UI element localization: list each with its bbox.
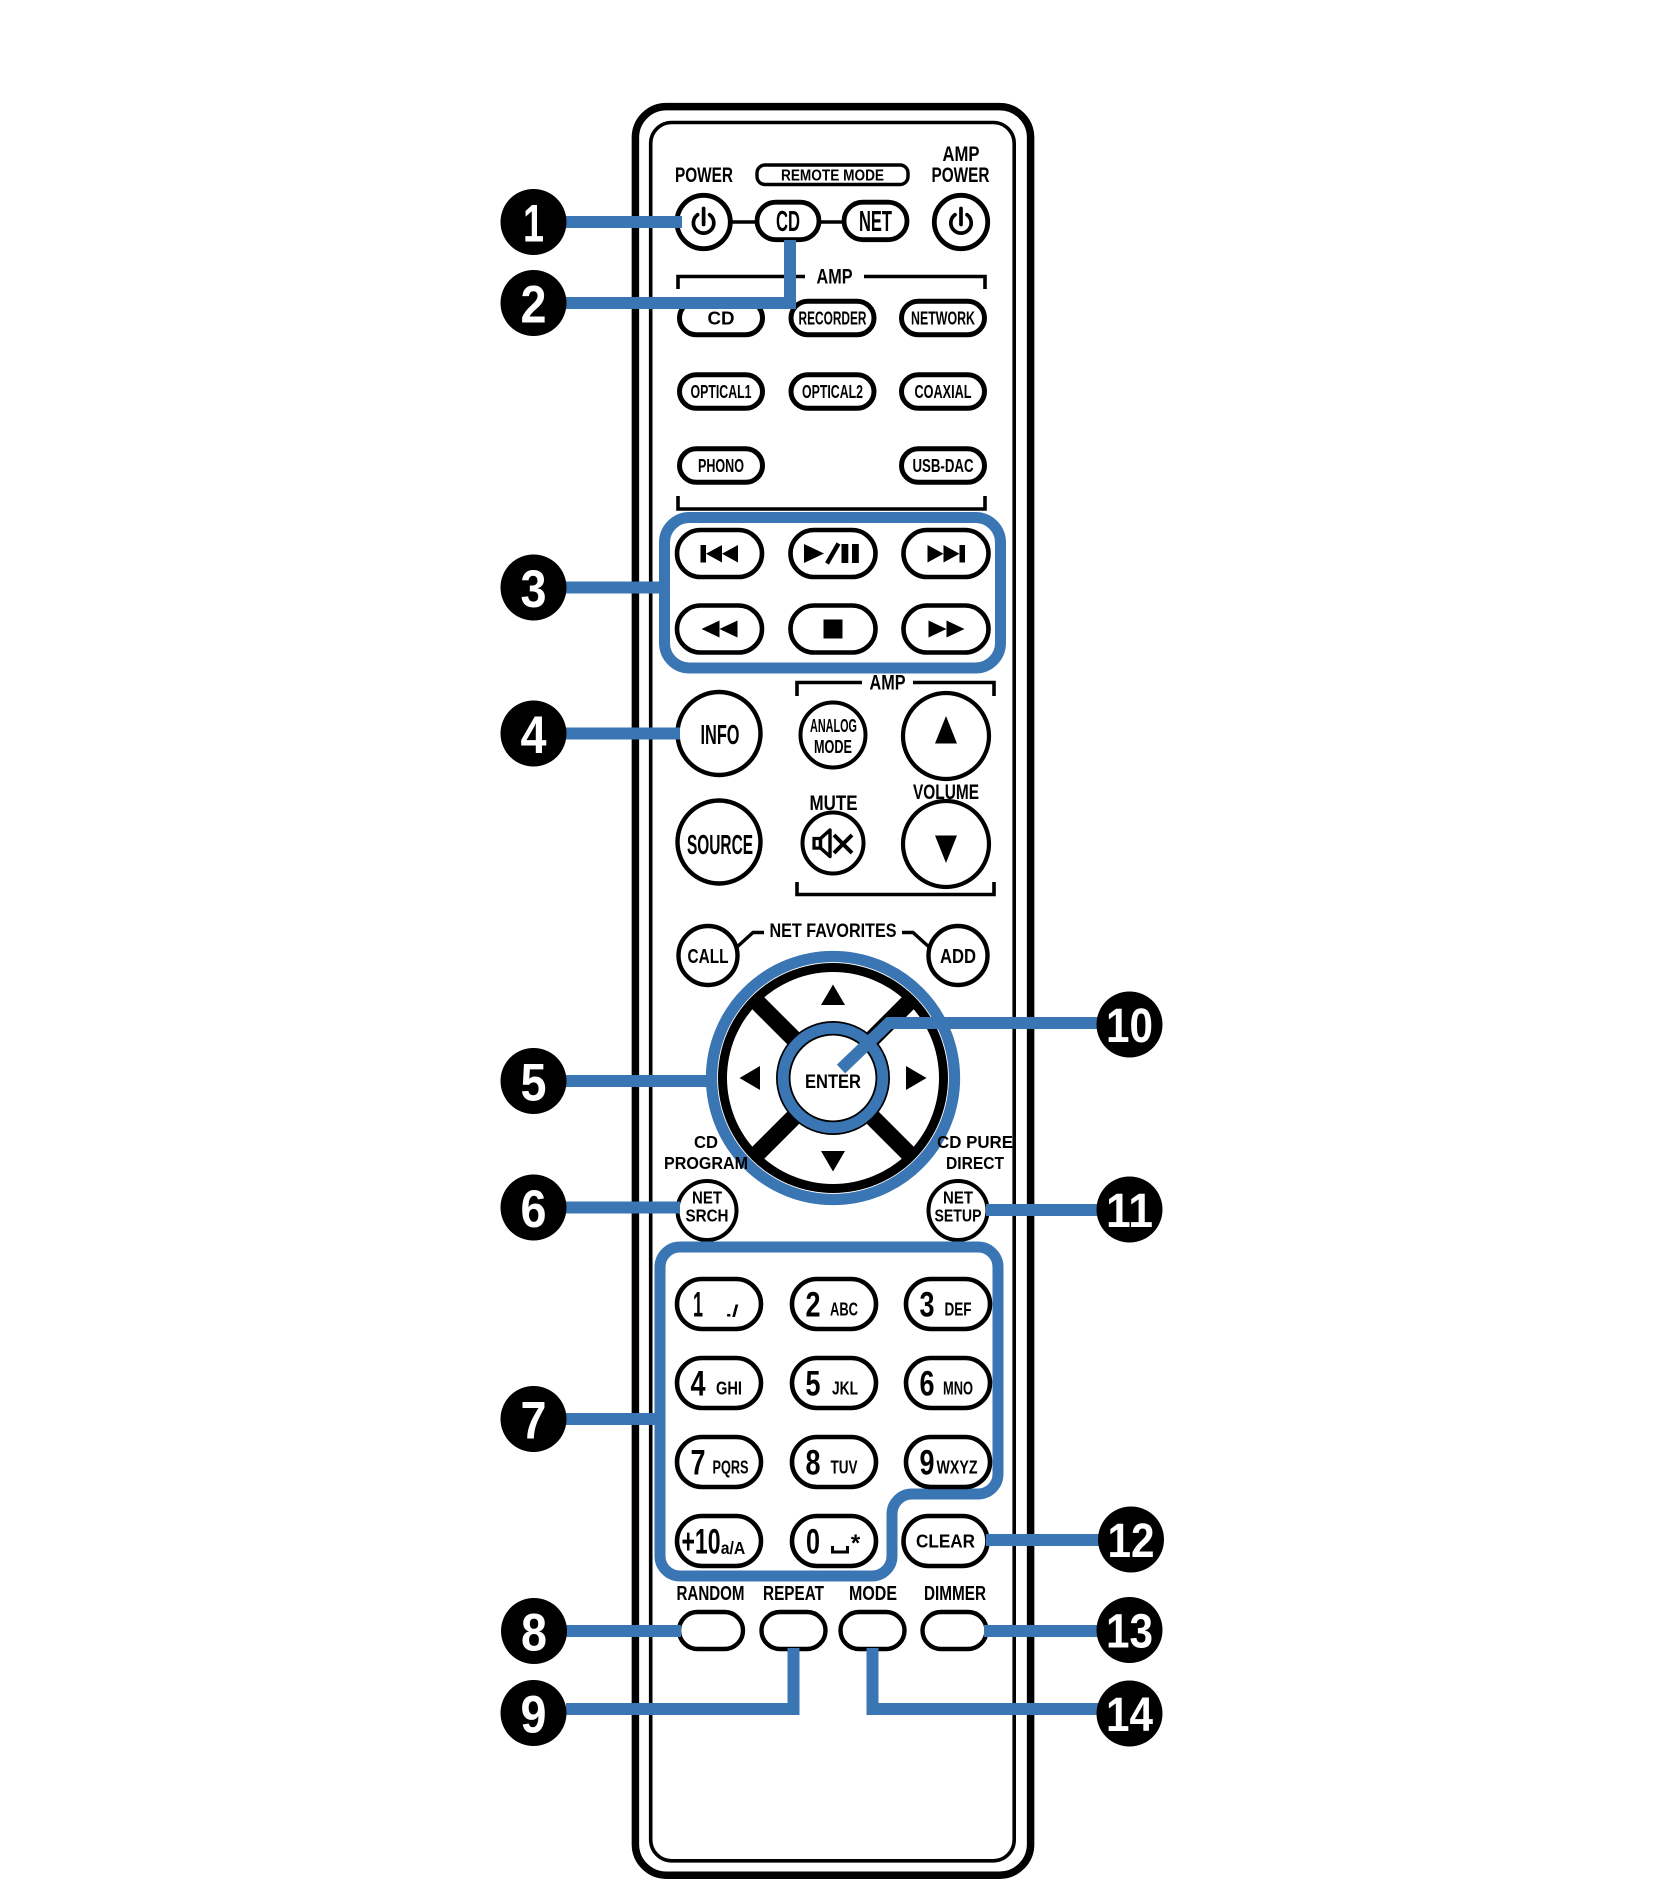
- svg-text:13: 13: [1106, 1606, 1153, 1659]
- svg-text:AMP: AMP: [943, 143, 980, 166]
- svg-text:NET FAVORITES: NET FAVORITES: [770, 920, 897, 942]
- svg-text:a/A: a/A: [721, 1538, 746, 1558]
- svg-text:7: 7: [521, 1392, 547, 1451]
- svg-text:ENTER: ENTER: [805, 1072, 861, 1093]
- svg-text:11: 11: [1106, 1185, 1153, 1238]
- svg-text:CD: CD: [708, 309, 735, 329]
- svg-text:+10: +10: [682, 1523, 721, 1562]
- svg-text:6: 6: [521, 1180, 547, 1239]
- svg-text:1: 1: [693, 1286, 703, 1325]
- svg-text:2: 2: [806, 1286, 821, 1325]
- svg-text:SRCH: SRCH: [686, 1206, 729, 1226]
- svg-text:9: 9: [920, 1444, 935, 1483]
- svg-text:8: 8: [521, 1604, 547, 1663]
- svg-text:7: 7: [691, 1444, 706, 1483]
- svg-text:WXYZ: WXYZ: [937, 1457, 978, 1478]
- svg-text:NET: NET: [859, 206, 892, 238]
- svg-text:SOURCE: SOURCE: [687, 829, 753, 860]
- svg-text:3: 3: [920, 1286, 935, 1325]
- svg-text:DEF: DEF: [945, 1299, 972, 1320]
- svg-text:ABC: ABC: [830, 1299, 858, 1320]
- svg-text:ADD: ADD: [940, 946, 976, 968]
- svg-text:CALL: CALL: [688, 946, 729, 968]
- svg-text:3: 3: [521, 560, 547, 619]
- svg-text:SETUP: SETUP: [935, 1206, 982, 1226]
- svg-text:4: 4: [521, 706, 547, 765]
- svg-text:9: 9: [521, 1686, 547, 1745]
- svg-text:CD: CD: [694, 1132, 718, 1152]
- svg-text:CD: CD: [776, 206, 800, 238]
- svg-text:REPEAT: REPEAT: [763, 1583, 824, 1605]
- svg-text:PQRS: PQRS: [713, 1457, 749, 1478]
- svg-text:MODE: MODE: [814, 737, 852, 757]
- svg-text:MNO: MNO: [943, 1378, 973, 1399]
- svg-text:8: 8: [806, 1444, 821, 1483]
- svg-text:CD PURE: CD PURE: [937, 1132, 1013, 1152]
- svg-text:DIMMER: DIMMER: [924, 1583, 986, 1605]
- svg-text:POWER: POWER: [932, 164, 990, 187]
- svg-text:OPTICAL2: OPTICAL2: [802, 382, 863, 402]
- svg-text:5: 5: [521, 1054, 547, 1113]
- svg-text:2: 2: [521, 276, 547, 335]
- svg-text:COAXIAL: COAXIAL: [915, 382, 972, 402]
- svg-text:./: ./: [726, 1302, 739, 1321]
- svg-text:DIRECT: DIRECT: [946, 1153, 1004, 1173]
- svg-text:AMP: AMP: [870, 672, 906, 695]
- svg-text:TUV: TUV: [831, 1457, 858, 1478]
- svg-text:NETWORK: NETWORK: [911, 309, 975, 329]
- svg-text:RECORDER: RECORDER: [799, 309, 867, 329]
- svg-text:12: 12: [1108, 1515, 1155, 1568]
- svg-text:OPTICAL1: OPTICAL1: [691, 382, 752, 402]
- svg-text:AMP: AMP: [817, 266, 853, 289]
- svg-text:0: 0: [806, 1523, 820, 1562]
- svg-text:ANALOG: ANALOG: [810, 716, 857, 736]
- svg-text:GHI: GHI: [716, 1378, 742, 1399]
- svg-text:REMOTE MODE: REMOTE MODE: [781, 168, 884, 185]
- svg-text:1: 1: [523, 195, 544, 254]
- svg-text:10: 10: [1106, 1000, 1153, 1053]
- svg-text:JKL: JKL: [832, 1378, 858, 1399]
- svg-text:14: 14: [1106, 1689, 1153, 1742]
- svg-text:4: 4: [691, 1365, 706, 1404]
- svg-text:NET: NET: [943, 1188, 973, 1208]
- svg-text:INFO: INFO: [701, 719, 740, 750]
- svg-text:PHONO: PHONO: [698, 456, 744, 476]
- svg-text:6: 6: [920, 1365, 935, 1404]
- svg-text:PROGRAM: PROGRAM: [664, 1153, 748, 1173]
- svg-text:CLEAR: CLEAR: [916, 1532, 975, 1552]
- svg-text:POWER: POWER: [675, 164, 733, 187]
- svg-text:5: 5: [806, 1365, 821, 1404]
- svg-text:NET: NET: [692, 1188, 722, 1208]
- svg-text:MODE: MODE: [849, 1583, 897, 1605]
- svg-text:USB-DAC: USB-DAC: [913, 456, 974, 476]
- svg-text:*: *: [851, 1530, 861, 1557]
- svg-text:RANDOM: RANDOM: [677, 1583, 745, 1605]
